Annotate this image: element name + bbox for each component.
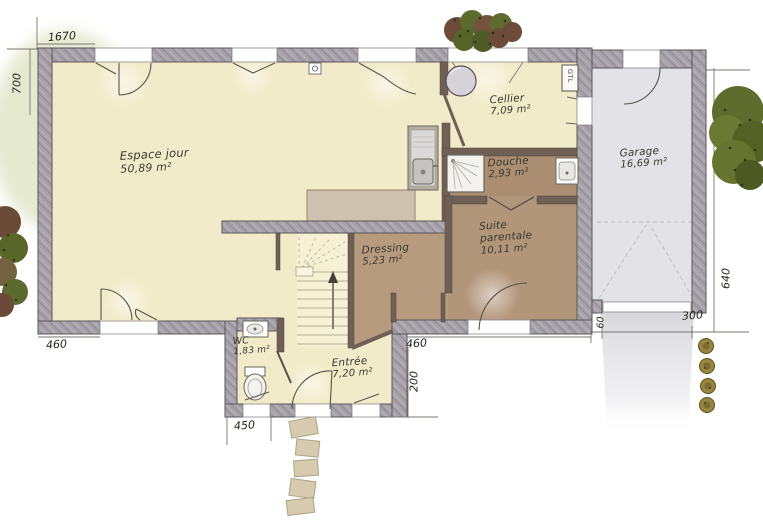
pantry-garage-opening — [577, 97, 592, 125]
window-north — [232, 48, 277, 62]
water-heater — [446, 66, 476, 96]
front-door-opening — [295, 404, 331, 417]
garage-side-door — [623, 50, 660, 68]
room-label-douche: Douche2,93 m² — [487, 155, 530, 182]
dim-top-width: 1670 — [48, 29, 77, 44]
dim-garage-setback: 60 — [596, 306, 607, 340]
hedge-shrubs — [699, 339, 716, 413]
bush-east — [709, 86, 763, 190]
dim-garage-depth: 640 — [720, 262, 733, 296]
wall-vent — [309, 63, 321, 74]
dim-garage-door-width: 300 — [682, 308, 704, 322]
driveway — [601, 312, 694, 434]
french-door-north — [95, 48, 152, 62]
garage-floor — [592, 68, 692, 302]
toilet-bowl — [244, 374, 266, 400]
kitchen-counter — [307, 190, 415, 221]
dim-suite-wall: 460 — [406, 336, 428, 350]
floor-plan: Espace jour50,89 m² Cellier7,09 m² Douch… — [0, 0, 763, 524]
room-label-cellier: Cellier7,09 m² — [489, 92, 531, 119]
dim-entry-block-width: 450 — [234, 418, 256, 432]
back-door — [358, 48, 416, 62]
garage-door — [603, 302, 691, 312]
room-label-wc: WC1,83 m² — [232, 334, 270, 358]
bush-west — [0, 206, 28, 317]
stepping-stones — [286, 417, 320, 516]
suite-french-door — [468, 320, 530, 334]
room-label-entree: Entrée7,20 m² — [331, 355, 373, 382]
bush-north — [444, 10, 522, 52]
entry-window — [352, 404, 380, 417]
gtl-label: GTL — [566, 59, 574, 93]
dim-left-height: 700 — [11, 67, 24, 101]
room-label-suite-parentale: Suite parentale 10,11 m² — [479, 217, 534, 257]
room-label-dressing: Dressing5,23 m² — [361, 241, 410, 268]
stairs-floor — [297, 235, 352, 347]
room-label-espace-jour: Espace jour50,89 m² — [119, 146, 189, 176]
dim-entry-side: 200 — [408, 365, 421, 399]
room-label-garage: Garage16,69 m² — [619, 144, 668, 171]
french-door-southwest — [100, 321, 158, 334]
dim-living-wall: 460 — [46, 337, 68, 351]
wc-window — [243, 404, 270, 417]
